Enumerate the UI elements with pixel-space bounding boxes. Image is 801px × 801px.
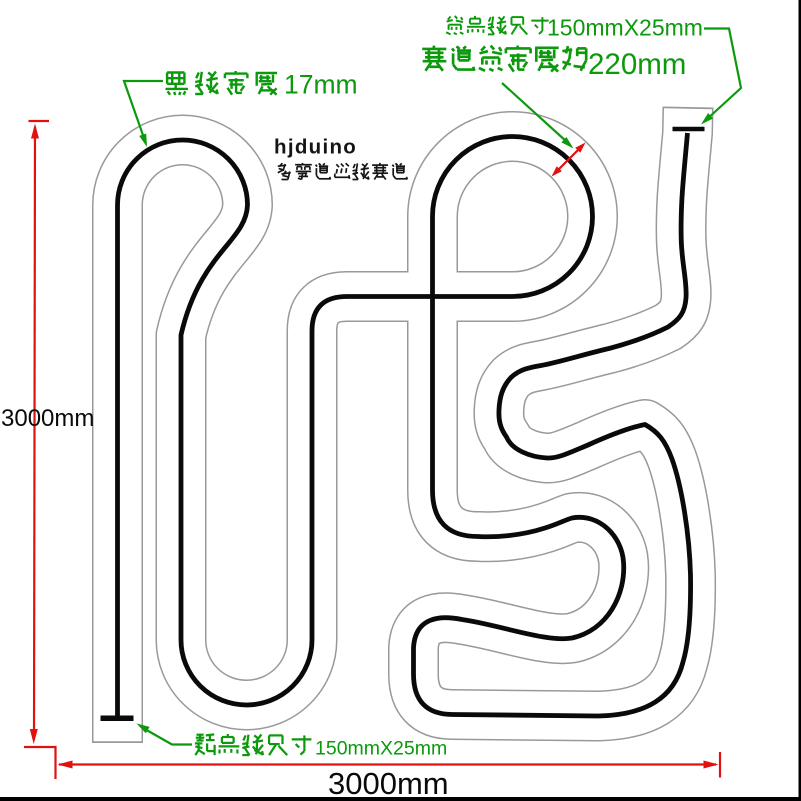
svg-text:150mmX25mm: 150mmX25mm (315, 738, 447, 760)
svg-text:220mm: 220mm (588, 48, 686, 81)
svg-text:150mmX25mm: 150mmX25mm (547, 15, 703, 41)
svg-text:hjduino: hjduino (274, 136, 357, 159)
svg-text:17mm: 17mm (284, 70, 358, 100)
svg-text:3000mm: 3000mm (1, 405, 94, 432)
svg-text:3000mm: 3000mm (328, 766, 449, 801)
